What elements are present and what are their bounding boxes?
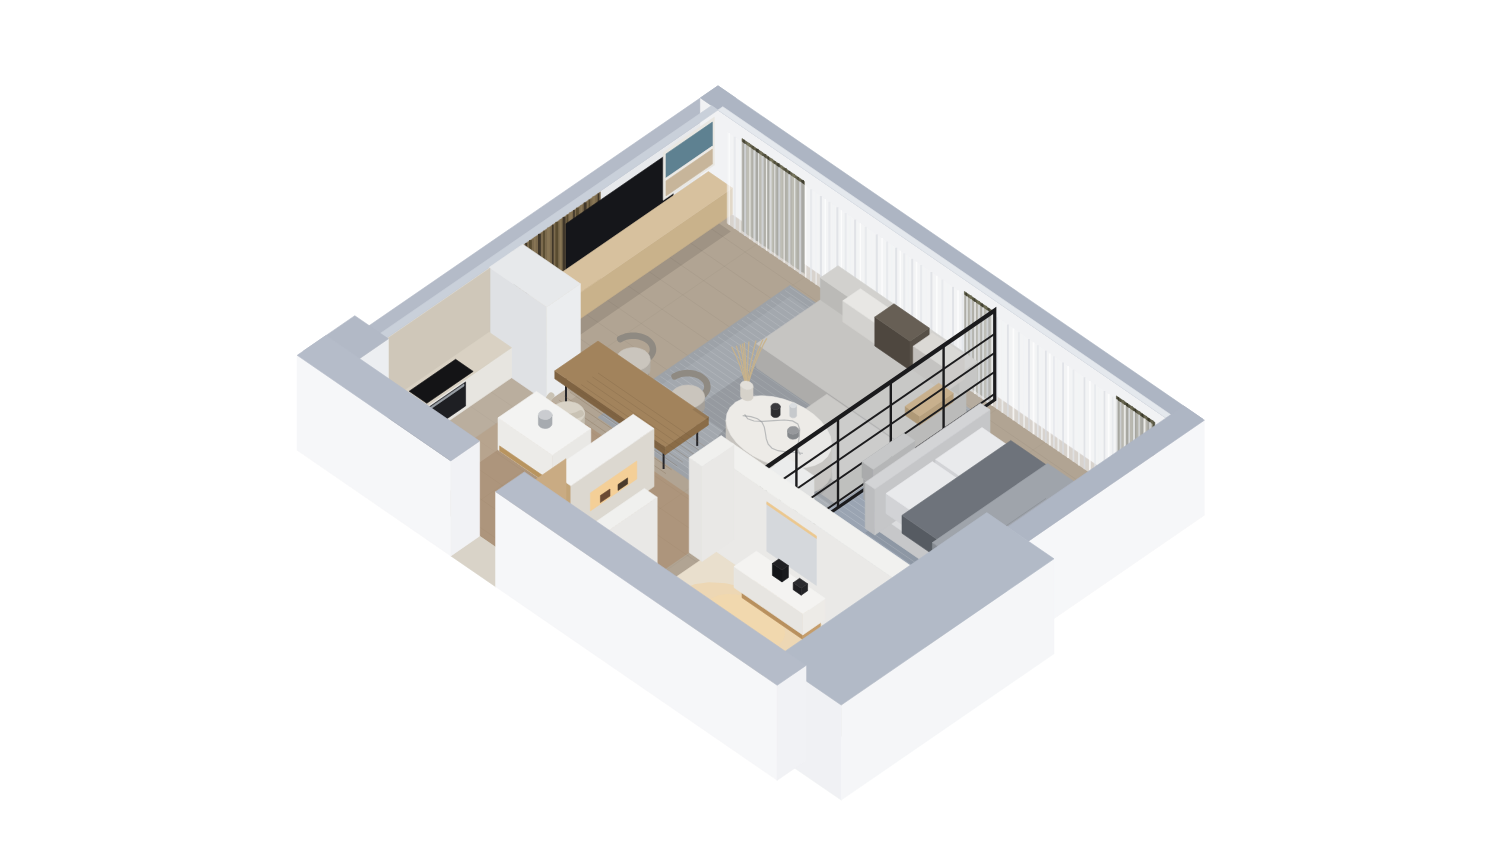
island-kettle-top [538, 410, 552, 419]
table-decor-white-vase-top [790, 403, 797, 408]
floorplan-stage [0, 0, 1500, 844]
isometric-floorplan-rendering [0, 0, 1500, 844]
table-decor-dark-vase-top [771, 403, 780, 409]
bottom-wall-right-side [777, 666, 806, 781]
bottom-wall-left-side [451, 441, 480, 556]
table-decor-bowl-top [788, 426, 799, 434]
bathroom-left-wall-upper-front [689, 458, 702, 562]
bed-headboard-front [865, 482, 875, 535]
